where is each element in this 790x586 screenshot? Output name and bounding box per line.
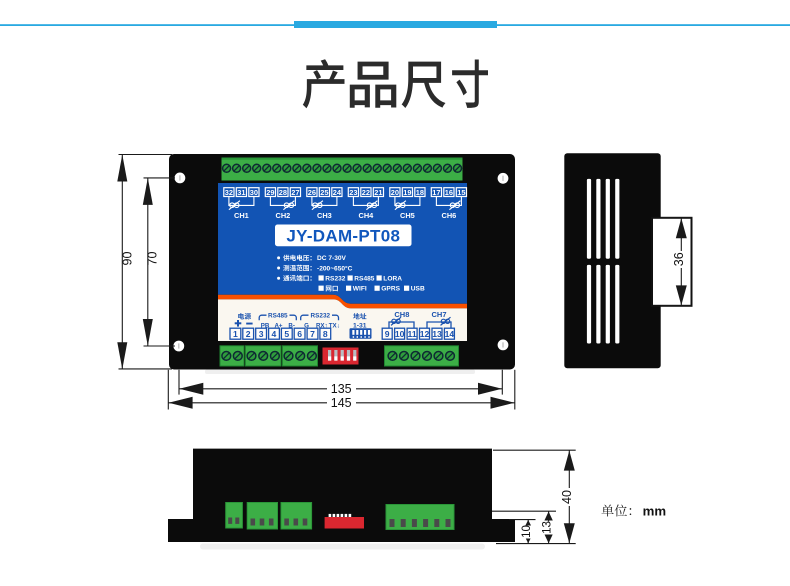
svg-text:27: 27 [291,188,299,197]
svg-text:15: 15 [457,188,465,197]
svg-text:JY-DAM-PT08: JY-DAM-PT08 [286,227,400,246]
svg-text:23: 23 [349,188,357,197]
svg-text:17: 17 [432,188,440,197]
svg-text:13: 13 [432,329,442,339]
svg-text:RS232: RS232 [311,312,331,319]
svg-text:CH2: CH2 [276,211,291,220]
svg-text:26: 26 [308,188,316,197]
svg-text:CH5: CH5 [400,211,415,220]
svg-text:13: 13 [541,521,553,534]
svg-text:2: 2 [246,329,251,339]
svg-text:DC 7-30V: DC 7-30V [317,255,347,262]
svg-text:GPRS: GPRS [381,286,400,293]
svg-text:RS485: RS485 [268,312,288,319]
svg-text:9: 9 [385,329,390,339]
svg-text:RS232: RS232 [325,276,345,283]
svg-text:10: 10 [521,525,533,538]
svg-text:14: 14 [445,329,455,339]
svg-text:18: 18 [416,188,424,197]
svg-text:70: 70 [146,252,160,266]
svg-text:16: 16 [445,188,453,197]
svg-text:CH3: CH3 [317,211,332,220]
svg-text:32: 32 [225,188,233,197]
svg-text:CH4: CH4 [359,211,375,220]
svg-text:8: 8 [323,329,328,339]
svg-text:31: 31 [237,188,245,197]
svg-text:-200~650°C: -200~650°C [317,264,353,272]
svg-text:36: 36 [672,252,686,266]
svg-text:135: 135 [331,382,352,396]
svg-text:7: 7 [310,329,315,339]
svg-text:CH7: CH7 [431,310,446,319]
svg-text:WIFI: WIFI [353,286,367,293]
svg-text:3: 3 [259,329,264,339]
svg-text:1: 1 [233,329,238,339]
svg-text:20: 20 [391,188,399,197]
svg-text:LORA: LORA [383,276,402,283]
svg-text:29: 29 [266,188,274,197]
svg-text:21: 21 [374,188,382,197]
svg-text:10: 10 [395,329,405,339]
svg-text:mm: mm [643,504,666,519]
svg-text:28: 28 [279,188,287,197]
svg-text:5: 5 [284,329,289,339]
svg-text:24: 24 [333,188,342,197]
svg-text:CH6: CH6 [442,211,457,220]
svg-text:22: 22 [362,188,370,197]
svg-text:40: 40 [560,490,574,504]
svg-text:145: 145 [331,396,352,410]
svg-text:CH8: CH8 [394,310,409,319]
svg-text:4: 4 [272,329,277,339]
svg-text:USB: USB [411,286,425,293]
svg-text:6: 6 [297,329,302,339]
svg-text:90: 90 [121,252,135,266]
svg-text:CH1: CH1 [234,211,249,220]
svg-text:12: 12 [420,329,430,339]
svg-text:19: 19 [403,188,411,197]
svg-text:11: 11 [408,329,417,339]
svg-text:25: 25 [320,188,328,197]
svg-text:30: 30 [250,188,258,197]
svg-text:RS485: RS485 [354,276,374,283]
